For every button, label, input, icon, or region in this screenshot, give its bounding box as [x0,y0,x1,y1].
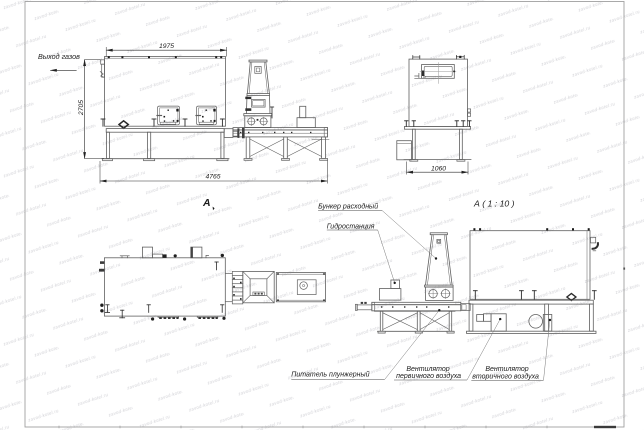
svg-text:1060: 1060 [431,166,446,173]
svg-text:Гидростанция: Гидростанция [327,222,375,230]
svg-text:Выход газов: Выход газов [38,52,80,61]
svg-text:1975: 1975 [159,43,174,50]
svg-text:Бункер расходный: Бункер расходный [318,203,378,211]
svg-text:вторичного воздуха: вторичного воздуха [472,373,539,381]
svg-text:Вентилятор: Вентилятор [485,366,528,373]
svg-text:А: А [202,197,211,209]
svg-text:первичного воздуха: первичного воздуха [396,372,461,380]
svg-text:4765: 4765 [205,174,220,181]
svg-text:2705: 2705 [78,100,85,116]
svg-text:А ( 1 : 10 ): А ( 1 : 10 ) [473,198,515,208]
svg-text:Питатель плунжерный: Питатель плунжерный [291,371,369,379]
